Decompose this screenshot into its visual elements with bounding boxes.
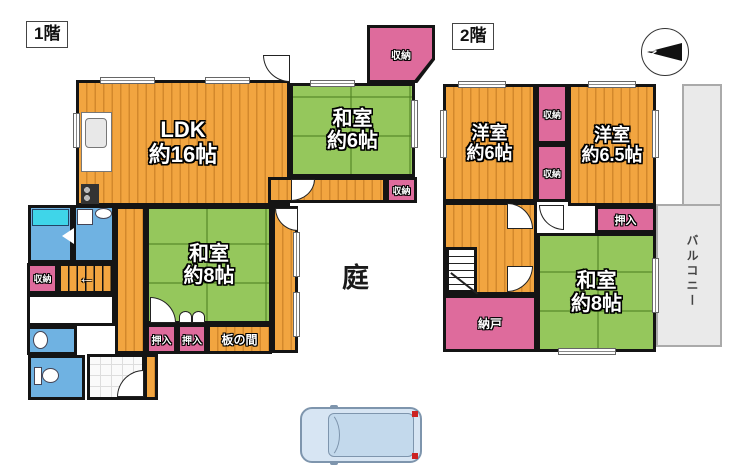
window bbox=[652, 258, 659, 313]
door-arc-2f-yoshitsu65 bbox=[539, 205, 564, 230]
car-cabin bbox=[328, 413, 414, 457]
window bbox=[100, 77, 155, 84]
car-icon bbox=[300, 407, 422, 463]
room-oshiire-2f: 押入 bbox=[595, 206, 656, 233]
window bbox=[310, 80, 355, 87]
hall-room-1f bbox=[27, 294, 115, 326]
room-label: 和室 約8帖 bbox=[183, 243, 234, 288]
car-mirror bbox=[330, 461, 338, 465]
room-label: 押入 bbox=[615, 212, 637, 228]
window bbox=[293, 232, 300, 277]
room-yoshitsu-65: 洋室 約6.5帖 bbox=[568, 84, 656, 206]
stove-icon bbox=[81, 184, 99, 204]
room-label: LDK 約16帖 bbox=[149, 118, 217, 167]
room-label: 収納 bbox=[391, 47, 411, 62]
window bbox=[73, 113, 80, 148]
refrigerator-icon bbox=[85, 118, 107, 148]
sink-icon bbox=[95, 208, 112, 219]
room-label: 洋室 約6.5帖 bbox=[581, 125, 642, 165]
stairs-2f bbox=[446, 247, 477, 293]
toilet-icon bbox=[33, 331, 48, 349]
folding-door-icon bbox=[62, 228, 74, 244]
room-label: 押入 bbox=[152, 332, 172, 347]
room-label: 収納 bbox=[543, 108, 561, 121]
balcony-lower: バルコニー bbox=[656, 204, 722, 347]
balcony-upper bbox=[682, 84, 722, 206]
window bbox=[293, 292, 300, 337]
window bbox=[652, 110, 659, 158]
window bbox=[458, 81, 506, 88]
room-label: 収納 bbox=[543, 167, 561, 180]
room-oshiire-a: 押入 bbox=[146, 324, 177, 354]
hallway-1f-vertical bbox=[115, 206, 146, 354]
room-itanoma: 板の間 bbox=[207, 324, 272, 354]
room-storage-2f-b: 収納 bbox=[536, 144, 568, 202]
storage-pentagon-fill: 収納 bbox=[370, 28, 432, 80]
toilet-bowl-icon bbox=[42, 368, 59, 383]
room-label: 和室 約8帖 bbox=[571, 270, 622, 315]
window bbox=[588, 81, 636, 88]
room-label: 板の間 bbox=[221, 331, 257, 348]
floor2-label: 2階 bbox=[452, 23, 494, 50]
window bbox=[558, 348, 616, 355]
room-storage-left: 収納 bbox=[27, 263, 58, 294]
room-label: 収納 bbox=[392, 184, 410, 197]
room-label: 押入 bbox=[182, 332, 202, 347]
garden-label: 庭 bbox=[342, 256, 369, 295]
compass-icon: N bbox=[641, 28, 689, 76]
stairs-1f: ← bbox=[58, 263, 115, 294]
washing-machine-icon bbox=[77, 209, 93, 225]
room-label: 収納 bbox=[33, 272, 51, 285]
window bbox=[440, 110, 447, 158]
car-mirror bbox=[330, 405, 338, 409]
bathtub-icon bbox=[32, 209, 69, 226]
room-storage-pentagon: 収納 bbox=[367, 25, 435, 83]
room-label: 納戸 bbox=[478, 315, 502, 332]
stairs-direction-arrow: ← bbox=[79, 270, 95, 288]
room-label: 和室 約6帖 bbox=[327, 108, 378, 153]
room-washitsu-6: 和室 約6帖 bbox=[290, 83, 415, 177]
genkan-step-strip bbox=[145, 354, 158, 400]
stairs-winder-line bbox=[451, 272, 479, 294]
room-nando: 納戸 bbox=[443, 295, 537, 352]
car-taillight bbox=[412, 411, 418, 417]
double-door-leaf-icon bbox=[192, 311, 205, 323]
window bbox=[411, 100, 418, 148]
room-oshiire-b: 押入 bbox=[177, 324, 207, 354]
compass-north-letter: N bbox=[648, 50, 658, 57]
car-taillight bbox=[412, 453, 418, 459]
room-storage-hall: 収納 bbox=[386, 177, 417, 203]
car-windshield bbox=[310, 411, 340, 459]
floor-plan: 1階 収納 LDK 約16帖 和室 約6帖 収納 和室 約8帖 bbox=[0, 0, 734, 475]
balcony-label: バルコニー bbox=[684, 234, 701, 309]
room-washitsu-8-2f: 和室 約8帖 bbox=[537, 233, 656, 352]
hallway-1f-top bbox=[268, 177, 386, 203]
toilet-tank-icon bbox=[34, 367, 42, 385]
floor1-label: 1階 bbox=[26, 21, 68, 48]
room-yoshitsu-6: 洋室 約6帖 bbox=[443, 84, 536, 202]
door-arc-ldk-entry bbox=[263, 55, 290, 82]
window bbox=[205, 77, 250, 84]
room-storage-2f-a: 収納 bbox=[536, 84, 568, 144]
room-label: 洋室 約6帖 bbox=[466, 123, 512, 163]
double-door-leaf-icon bbox=[179, 311, 192, 323]
